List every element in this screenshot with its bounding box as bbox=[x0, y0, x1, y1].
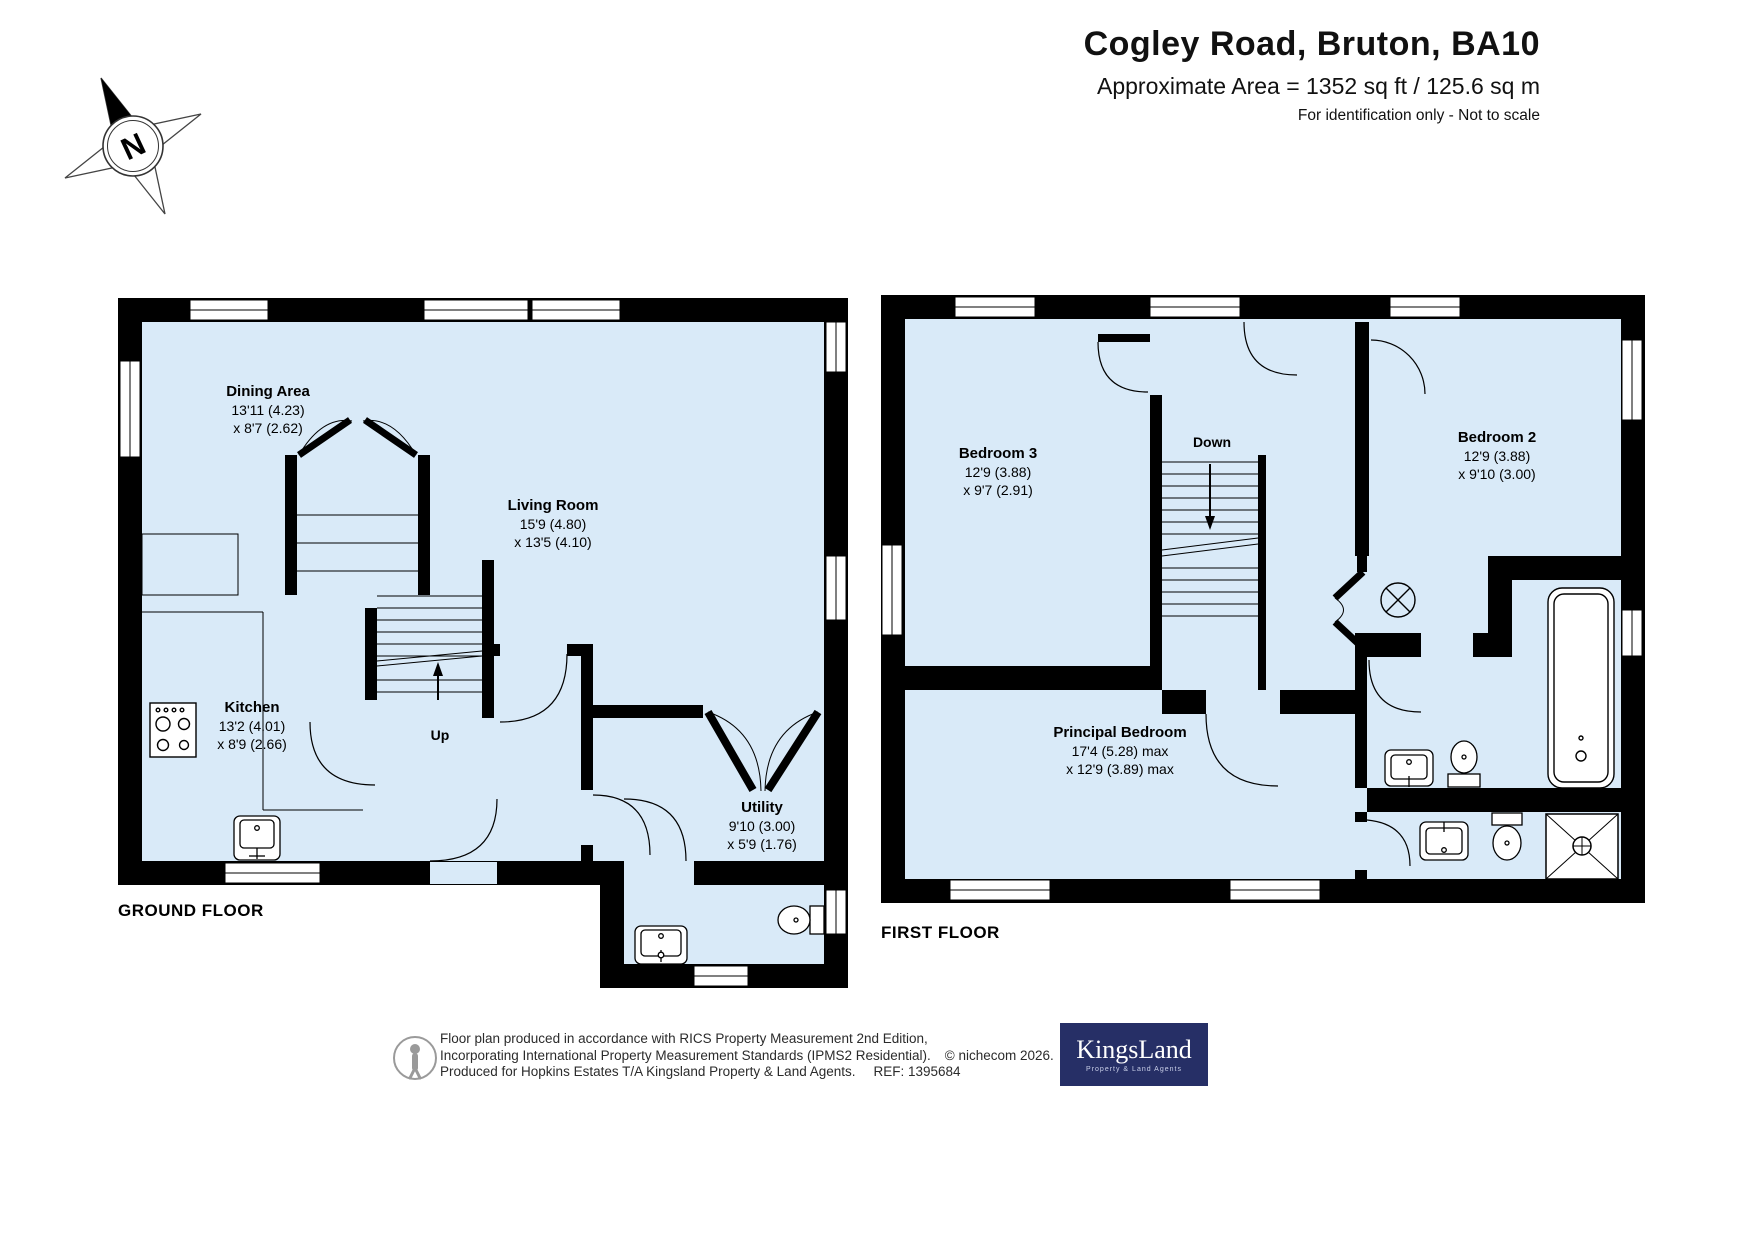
room-label-bedroom3: Bedroom 3 12'9 (3.88) x 9'7 (2.91) bbox=[959, 445, 1037, 498]
bathroom-sink-icon bbox=[1385, 750, 1433, 787]
footer-disclaimer: Floor plan produced in accordance with R… bbox=[440, 1031, 1054, 1081]
room-name: Dining Area bbox=[226, 383, 310, 400]
approximate-area: Approximate Area = 1352 sq ft / 125.6 sq… bbox=[1084, 73, 1540, 100]
room-name: Bedroom 3 bbox=[959, 445, 1037, 462]
ground-floor-label: GROUND FLOOR bbox=[118, 901, 264, 920]
room-dim: x 12'9 (3.89) max bbox=[1066, 761, 1174, 777]
window bbox=[1150, 297, 1240, 317]
wc-toilet-icon bbox=[778, 906, 824, 934]
room-dim: 17'4 (5.28) max bbox=[1072, 743, 1169, 759]
kitchen-sink-icon bbox=[234, 816, 280, 860]
bathroom-toilet-icon bbox=[1448, 741, 1480, 787]
window bbox=[120, 361, 140, 457]
ensuite-sink-icon bbox=[1420, 822, 1468, 860]
room-label-kitchen: Kitchen 13'2 (4.01) x 8'9 (2.66) bbox=[217, 699, 287, 752]
logo-tagline: Property & Land Agents bbox=[1086, 1066, 1182, 1073]
reference-number: REF: 1395684 bbox=[874, 1064, 961, 1079]
room-dim: 12'9 (3.88) bbox=[965, 464, 1032, 480]
room-name: Kitchen bbox=[224, 699, 279, 716]
window bbox=[694, 966, 748, 986]
window bbox=[955, 297, 1035, 317]
room-name: Living Room bbox=[508, 497, 599, 514]
bath-icon bbox=[1548, 588, 1614, 788]
window bbox=[532, 300, 620, 320]
window bbox=[1390, 297, 1460, 317]
title-block: Cogley Road, Bruton, BA10 Approximate Ar… bbox=[1084, 24, 1540, 125]
room-dim: x 9'10 (3.00) bbox=[1458, 466, 1535, 482]
hob-icon bbox=[150, 703, 196, 757]
stairs-down-label: Down bbox=[1193, 434, 1231, 450]
copyright: © nichecom 2026. bbox=[945, 1048, 1054, 1063]
logo-name: KingsLand bbox=[1076, 1037, 1192, 1063]
window bbox=[225, 863, 320, 883]
first-floor-plan: Down bbox=[881, 295, 1645, 942]
window bbox=[882, 545, 902, 635]
window bbox=[826, 322, 846, 372]
first-floor-label: FIRST FLOOR bbox=[881, 923, 1000, 942]
room-dim: x 13'5 (4.10) bbox=[514, 534, 591, 550]
room-label-living: Living Room 15'9 (4.80) x 13'5 (4.10) bbox=[508, 497, 599, 550]
footer-line-3: Produced for Hopkins Estates T/A Kingsla… bbox=[440, 1064, 1054, 1081]
footer-line-1: Floor plan produced in accordance with R… bbox=[440, 1031, 1054, 1048]
door-opening bbox=[430, 862, 497, 884]
window bbox=[1622, 340, 1642, 420]
shower-icon bbox=[1546, 814, 1618, 879]
room-name: Bedroom 2 bbox=[1458, 429, 1536, 446]
room-dim: x 8'9 (2.66) bbox=[217, 736, 287, 752]
room-dim: 12'9 (3.88) bbox=[1464, 448, 1531, 464]
person-icon bbox=[394, 1037, 436, 1079]
identification-note: For identification only - Not to scale bbox=[1084, 107, 1540, 125]
compass-rose-icon: N bbox=[65, 78, 201, 214]
wc-sink-icon bbox=[635, 926, 687, 964]
room-dim: 13'2 (4.01) bbox=[219, 718, 286, 734]
stairs-up-label: Up bbox=[431, 727, 450, 743]
room-label-bedroom2: Bedroom 2 12'9 (3.88) x 9'10 (3.00) bbox=[1458, 429, 1536, 482]
window bbox=[190, 300, 268, 320]
room-name: Principal Bedroom bbox=[1053, 724, 1186, 741]
window bbox=[826, 556, 846, 620]
ground-floor-plan: Up bbox=[118, 298, 848, 988]
window bbox=[1230, 880, 1320, 900]
room-label-principal: Principal Bedroom 17'4 (5.28) max x 12'9… bbox=[1053, 724, 1186, 777]
room-dim: x 9'7 (2.91) bbox=[963, 482, 1033, 498]
room-dim: x 8'7 (2.62) bbox=[233, 420, 303, 436]
window bbox=[1622, 610, 1642, 656]
ensuite-toilet-icon bbox=[1492, 813, 1522, 860]
room-dim: x 5'9 (1.76) bbox=[727, 836, 797, 852]
window bbox=[950, 880, 1050, 900]
room-name: Utility bbox=[741, 799, 783, 816]
room-dim: 13'11 (4.23) bbox=[231, 402, 304, 418]
footer-line-2: Incorporating International Property Mea… bbox=[440, 1048, 1054, 1065]
page-title: Cogley Road, Bruton, BA10 bbox=[1084, 24, 1540, 64]
window bbox=[424, 300, 528, 320]
window bbox=[826, 890, 846, 934]
room-dim: 15'9 (4.80) bbox=[520, 516, 587, 532]
kingsland-logo: KingsLand Property & Land Agents bbox=[1060, 1023, 1208, 1086]
room-dim: 9'10 (3.00) bbox=[729, 818, 796, 834]
room-label-dining: Dining Area 13'11 (4.23) x 8'7 (2.62) bbox=[226, 383, 310, 436]
